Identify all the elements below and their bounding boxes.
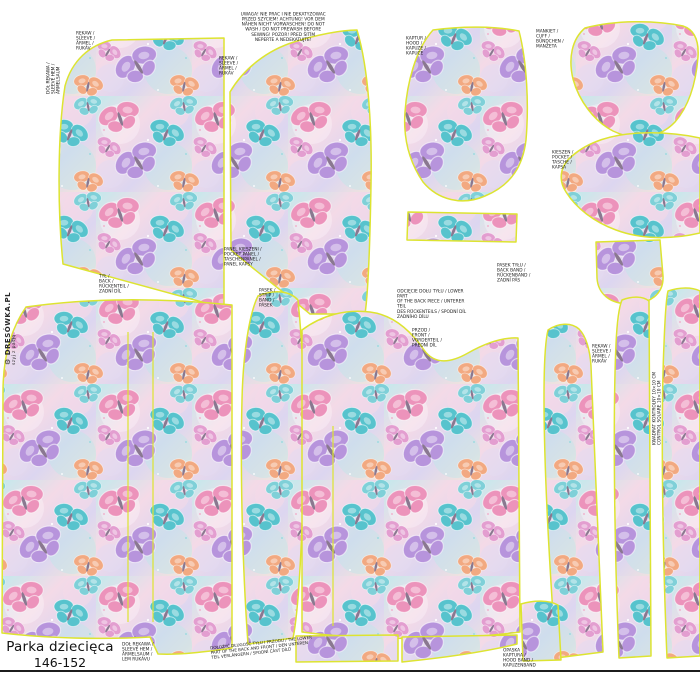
brand-name: DRESÓWKA.PL [4,292,12,355]
piece-back-band [407,212,517,242]
brand-tagline: szyj z pasją [12,292,17,365]
piece-cuff [571,22,698,137]
piece-pocket-round [596,240,663,304]
piece-bottom-strip-2 [402,635,517,662]
panel-title-block: Parka dziecięca 146-152 [2,640,118,670]
piece-label-pocket-panel: PANEL KIESZENI / POCKET PANEL / TASCHENP… [224,247,262,267]
piece-label-cuff: MANKIET / CUFF / BÜNDCHEN / MANŽETA [536,29,564,49]
control-square-note: KWADRAT KONTROLNY 10×10 CM CONTROL SQUAR… [652,372,662,445]
piece-sleeve-right-2 [614,297,651,658]
back-cut-note: ODCIĘCIE DOŁU TYŁU / LOWER PART OF THE B… [397,289,469,320]
piece-label-strip: PASEK / STRIP / BAND / PÁSEK [259,288,275,308]
piece-label-front: PRZÓD / FRONT / VORDERTEIL / PŘEDNÍ DÍL [412,328,442,348]
piece-front [302,311,520,638]
piece-label-pocket: KIESZEŃ / POCKET / TASCHE / KAPSA [552,150,573,170]
print-edge-note: DÓŁ RĘKAWA / SLEEVE HEM / ÄRMELSAUM [46,62,61,94]
piece-sleeve-front [230,30,371,314]
piece-side-right [561,133,700,238]
piece-center-strip [241,292,304,644]
pattern-size: 146-152 [2,655,118,670]
piece-label-sleeve-right: RĘKAW / SLEEVE / ÄRMEL / RUKÁV [592,344,611,364]
piece-back [2,300,232,654]
panel-cut-line [0,670,700,672]
piece-sleeve-left [59,38,224,308]
brand-logo: ⚙ DRESÓWKA.PL szyj z pasją [4,292,17,365]
sleeve-hem-label: DÓŁ RĘKAWA / SLEEVE HEM / ÄRMELSAUM / LE… [122,642,154,662]
fabric-panel: UWAGA! NIE PRAĆ I NIE DEKATYZOWAĆ PRZED … [0,0,700,700]
piece-label-hood: KAPTUR / HOOD / KAPUZE / KAPUCE [406,36,426,56]
prewash-warning-note: UWAGA! NIE PRAĆ I NIE DEKATYZOWAĆ PRZED … [222,12,344,43]
piece-label-back-band: PASEK TYŁU / BACK BAND / RÜCKENBAND / ZA… [497,263,530,283]
piece-label-back: TYŁ / BACK / RÜCKENTEIL / ZADNÍ DÍL [99,274,129,294]
piece-label-sleeve-left: RĘKAW / SLEEVE / ÄRMEL / RUKÁV [76,31,95,51]
piece-label-sleeve-front: RĘKAW / SLEEVE / ÄRMEL / RUKÁV [219,56,238,76]
pattern-name: Parka dziecięca [2,640,118,655]
brand-gear-icon: ⚙ [4,358,12,365]
hood-band-label: OPASKA KAPTURA / HOOD BAND / KAPUZENBAND [503,648,536,668]
piece-sleeve-right-3 [662,288,700,658]
